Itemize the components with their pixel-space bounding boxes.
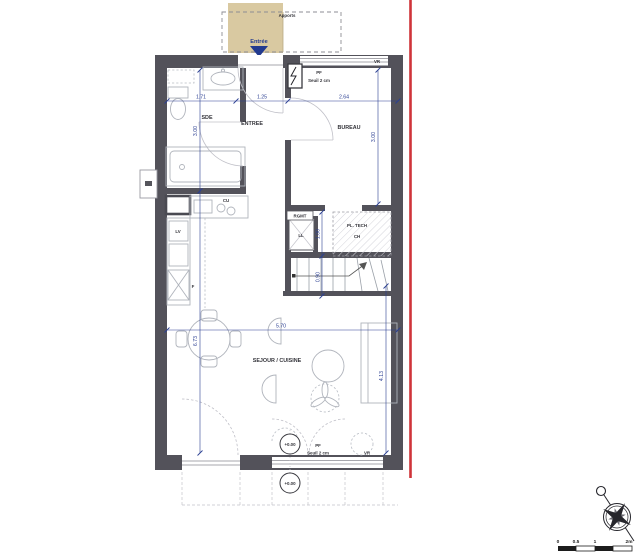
compass-rose [595,487,639,542]
armchair-2 [262,375,276,403]
dishwasher-label: LV [175,229,180,234]
scale-1: 1 [594,539,597,545]
dimensions: 1.71 1.25 2.64 3.00 6.73 3.00 1.00 0.90 … [165,68,401,456]
sde-fixtures [166,67,245,186]
porch-label: Apports [279,13,296,18]
room-label-bureau: BUREAU [337,125,360,131]
entrance-porch: Apports Entrée [222,3,341,57]
window-bottom [345,457,383,468]
washbasin-bowl [211,72,235,85]
seuil-top-label: Seuil 2 cm [308,78,330,83]
armchair-1 [268,318,281,344]
kitchen: CU LV F [166,196,248,308]
staircase [292,258,388,291]
kitchen-counter-top [190,196,248,218]
stair-start-marker [292,274,296,278]
room-label-sejour: SEJOUR / CUISINE [253,358,302,364]
scale-segment-2 [576,546,595,551]
duct-shaft [166,196,190,214]
scale-segment-3 [595,546,613,551]
stair-direction-arrow [295,264,365,276]
floor-plan-drawing: Apports Entrée [0,0,640,559]
wall-right [391,55,403,470]
door-swings [182,68,345,455]
washbasin-faucet [222,69,225,72]
level-inside-value: +0.00 [284,442,296,447]
chair-bottom [201,356,217,367]
rgmt-label: RGMT [294,214,307,219]
wall-left [155,55,167,470]
washbasin [203,67,243,90]
sde-door-swing [199,122,243,166]
side-table [312,350,344,382]
bottom-left-door-swing [182,399,238,455]
scale-05: 0.5 [573,539,580,545]
dim-sde-height: 3.00 [193,126,199,136]
wall-stairs-bottom [283,291,391,296]
room-label-entree: ENTREE [241,121,263,127]
dim-bureau-width: 2.64 [339,95,349,101]
entrance-label: Entrée [250,39,267,45]
bathtub-drain [180,165,185,170]
hob-burner-1 [217,204,225,212]
north-indicator-icon [597,487,606,496]
door-bottom-left-opening [182,455,240,470]
vr-top-label: VR [374,59,381,64]
fridge-label: F [192,284,195,289]
wc-tank [168,87,188,98]
dim-sejour-height: 6.73 [193,336,199,346]
level-outside-value: +0.00 [284,481,296,486]
kitchen-unit [169,244,188,266]
wc-bowl [171,99,186,120]
dim-rgmt-depth: 1.00 [316,229,322,239]
dim-bureau-height: 3.00 [371,132,377,142]
bathtub [166,147,245,186]
dim-sde-width: 1.71 [196,95,206,101]
hob-label: CU [223,198,229,203]
chair-left [176,331,187,347]
scale-segment-4 [613,546,632,551]
vr-bottom-label: VR [364,451,371,456]
stair-treads [297,258,388,291]
pf-bottom-label: PF [315,443,321,448]
kitchen-sink [194,200,212,213]
room-label-sde: SDE [201,115,212,121]
hob-burner-2 [227,207,235,215]
wall-bureau-bottom-left [291,205,325,211]
stair-arrowhead-icon [359,262,367,270]
wall-bureau-bottom-right [362,205,403,211]
dim-entree-width: 1.25 [257,95,267,101]
pl-tech-closet [333,212,391,256]
scale-bar: 0 0.5 1 2m [557,539,633,551]
bathtub-inner [170,151,241,182]
furniture [176,310,397,455]
pf-top-label: PF [316,70,322,75]
compass-star-icon [595,495,639,539]
plant-leaves [310,382,341,409]
utility-box-mark [145,181,152,186]
shelf [168,70,194,83]
seuil-bottom-label: Seuil 2 cm [307,451,329,456]
dim-right-height: 4.13 [379,371,385,381]
entrance-door-opening [238,55,283,68]
bureau-door-swing [291,98,333,140]
pl-tech-label: PL. TECH [347,223,367,228]
chair-top [201,310,217,321]
floor-plan-page: Apports Entrée [0,0,640,559]
chair-right [230,331,241,347]
porch-canopy [228,3,283,53]
dim-sejour-width: 5.70 [276,324,286,330]
boiler-label: CH [354,234,360,239]
washer-label: LL [298,233,304,238]
dim-stairs-depth: 0.90 [316,272,322,282]
scale-0: 0 [557,539,560,545]
scale-segment-1 [558,546,576,551]
french-door-bottom [272,457,345,468]
wall-sde-bottom [165,188,246,194]
technical-area: RGMT LL PL. TECH CH [287,64,391,256]
scale-2m: 2m [626,539,633,545]
